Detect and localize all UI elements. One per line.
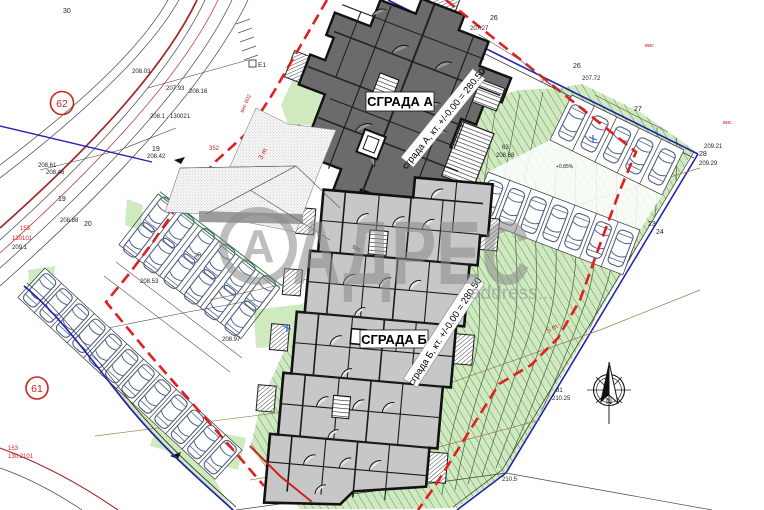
svg-text:210.25: 210.25 bbox=[552, 396, 571, 402]
svg-text:30: 30 bbox=[63, 8, 71, 15]
svg-text:209.29: 209.29 bbox=[699, 161, 718, 167]
svg-text:208.53: 208.53 bbox=[140, 279, 159, 285]
svg-text:23: 23 bbox=[648, 221, 656, 228]
svg-text:63: 63 bbox=[502, 145, 509, 151]
svg-text:19: 19 bbox=[58, 196, 66, 203]
svg-text:вис: вис bbox=[645, 43, 654, 49]
svg-text:207.27: 207.27 bbox=[470, 26, 489, 32]
svg-text:19: 19 bbox=[152, 146, 160, 153]
svg-text:207.72: 207.72 bbox=[582, 76, 601, 82]
svg-text:208.42: 208.42 bbox=[147, 154, 166, 160]
svg-text:24: 24 bbox=[656, 229, 664, 236]
svg-text:address...: address... bbox=[470, 283, 553, 304]
svg-text:209.1: 209.1 bbox=[12, 245, 28, 251]
svg-text:352: 352 bbox=[209, 146, 220, 152]
svg-text:26: 26 bbox=[490, 15, 498, 22]
svg-text:208.1 , 130021: 208.1 , 130021 bbox=[150, 114, 191, 120]
svg-text:вис: вис bbox=[723, 120, 732, 126]
svg-text:СГРАДА Б: СГРАДА Б bbox=[361, 332, 427, 347]
svg-text:62: 62 bbox=[56, 98, 68, 110]
svg-text:27: 27 bbox=[634, 106, 642, 113]
svg-text:130.2101: 130.2101 bbox=[8, 454, 34, 460]
svg-text:28: 28 bbox=[699, 151, 707, 158]
svg-text:208.88: 208.88 bbox=[60, 218, 79, 224]
svg-text:210.5: 210.5 bbox=[502, 477, 518, 483]
svg-text:208.97: 208.97 bbox=[222, 337, 241, 343]
svg-text:209.21: 209.21 bbox=[704, 144, 723, 150]
svg-text:208.16: 208.16 bbox=[189, 89, 208, 95]
svg-text:208.61: 208.61 bbox=[38, 163, 57, 169]
svg-text:А: А bbox=[241, 220, 274, 272]
svg-text:153: 153 bbox=[8, 446, 19, 452]
svg-text:26: 26 bbox=[573, 63, 581, 70]
svg-text:207.93: 207.93 bbox=[166, 86, 185, 92]
svg-text:130101: 130101 bbox=[12, 236, 33, 242]
svg-text:208.46: 208.46 bbox=[46, 170, 65, 176]
svg-text:208.68: 208.68 bbox=[496, 153, 515, 159]
svg-text:81: 81 bbox=[556, 388, 563, 394]
svg-text:208.03: 208.03 bbox=[132, 69, 151, 75]
svg-text:E1: E1 bbox=[258, 62, 266, 69]
svg-text:153: 153 bbox=[20, 226, 31, 232]
svg-text:20: 20 bbox=[84, 221, 92, 228]
svg-text:СГРАДА А: СГРАДА А bbox=[367, 94, 433, 109]
svg-text:+0.85%: +0.85% bbox=[556, 164, 574, 170]
svg-text:61: 61 bbox=[31, 383, 43, 395]
